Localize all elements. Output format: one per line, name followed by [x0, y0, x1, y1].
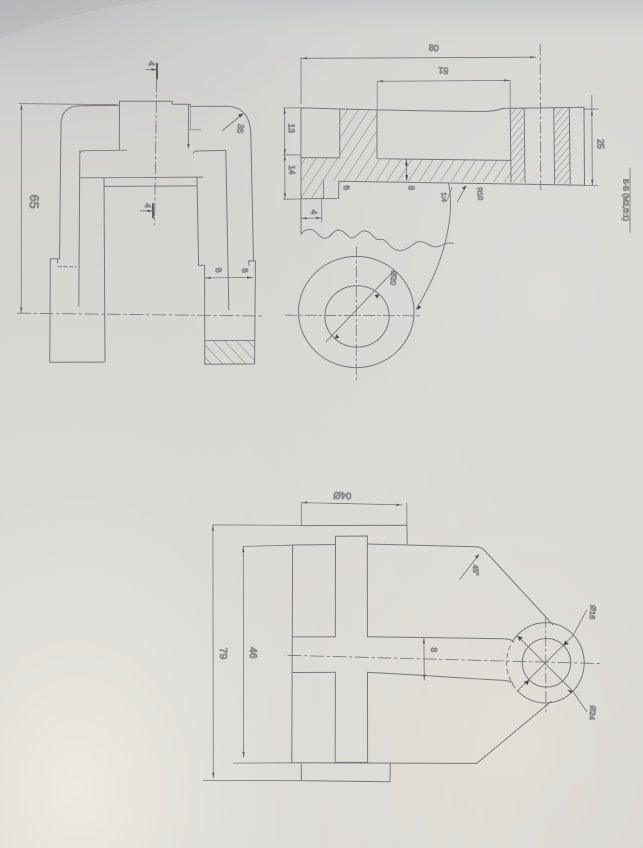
svg-text:80: 80: [428, 43, 439, 54]
svg-text:79: 79: [217, 648, 229, 660]
svg-text:Ø20: Ø20: [388, 271, 398, 286]
svg-text:Ø24: Ø24: [587, 705, 597, 720]
svg-text:04Ø: 04Ø: [333, 489, 352, 501]
svg-text:Ø16: Ø16: [588, 605, 598, 620]
svg-text:13: 13: [286, 124, 296, 134]
svg-text:1:4: 1:4: [439, 192, 447, 202]
svg-text:46: 46: [247, 647, 259, 659]
svg-text:Б-Б (М2,5:1): Б-Б (М2,5:1): [622, 179, 631, 222]
svg-text:65: 65: [27, 194, 41, 208]
svg-text:R10: R10: [475, 187, 483, 201]
svg-text:25: 25: [596, 139, 606, 149]
svg-text:45°: 45°: [471, 564, 481, 576]
svg-text:35: 35: [235, 123, 247, 134]
svg-text:8: 8: [407, 186, 416, 191]
svg-text:4: 4: [309, 210, 319, 215]
svg-text:8: 8: [429, 647, 439, 652]
svg-text:14: 14: [287, 165, 297, 175]
svg-text:51: 51: [438, 65, 449, 76]
